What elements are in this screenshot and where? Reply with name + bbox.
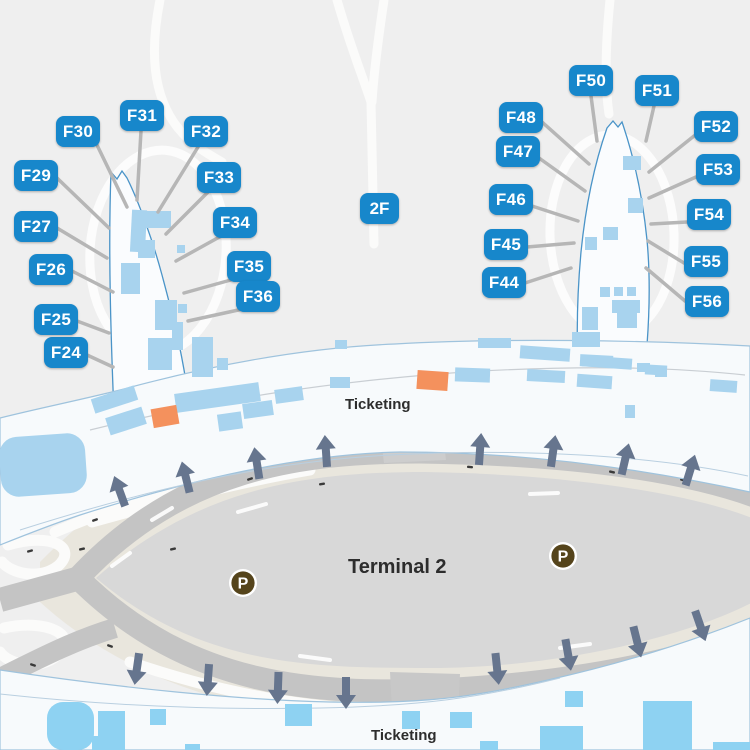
room-block [625,405,635,418]
room-block [614,287,623,296]
lane-mark [530,493,558,494]
room-block [643,701,692,750]
room-block [645,364,667,375]
room-block [192,337,213,377]
room-block [600,287,610,297]
room-block [138,240,155,258]
approach-road-right [606,0,610,114]
room-block [710,379,738,393]
terminal-map-canvas: P P [0,0,750,750]
parking-icon: P [549,542,577,570]
room-block [172,322,183,350]
room-block [47,702,94,750]
gate-leader-line-F54 [651,222,687,224]
room-block [455,367,490,382]
room-block [585,237,597,250]
room-block [527,369,566,383]
room-block [612,300,640,313]
parking-icon-letter: P [558,549,569,566]
room-block [285,704,312,726]
room-block [582,307,598,330]
room-block [92,736,117,750]
room-block [577,374,613,389]
room-block [0,432,88,498]
terminal-map[interactable]: P P Ticketing Ticketing Terminal 2 2F F2… [0,0,750,750]
highlighted-room [416,370,448,391]
room-block [480,741,498,750]
room-block [713,742,750,750]
room-block [121,263,140,294]
room-block [450,712,472,728]
room-block [540,726,583,750]
room-block [217,358,228,370]
room-block [603,227,618,240]
room-block [402,711,420,729]
room-block [148,338,172,370]
room-block [627,287,636,296]
room-block [478,338,511,348]
room-block [330,377,350,388]
room-block [185,744,200,750]
room-block [335,340,347,349]
parking-icon: P [229,569,257,597]
parking-icon-letter: P [238,576,249,593]
room-block [565,691,583,707]
room-block [150,709,166,725]
room-block [178,304,187,313]
room-block [623,156,641,170]
room-block [580,354,614,368]
room-block [572,332,600,347]
room-block [217,411,243,431]
room-block [628,198,643,213]
room-block [177,245,185,253]
